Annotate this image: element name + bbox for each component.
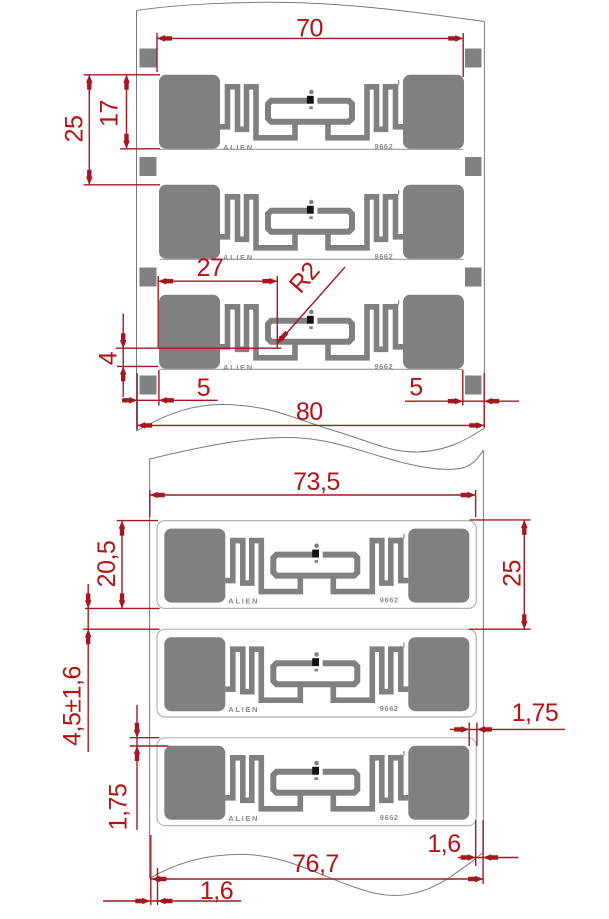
svg-text:76,7: 76,7 xyxy=(292,850,339,878)
svg-text:5: 5 xyxy=(197,374,210,402)
svg-text:80: 80 xyxy=(296,398,323,426)
svg-text:25: 25 xyxy=(499,560,527,587)
svg-text:5: 5 xyxy=(409,374,422,402)
svg-text:70: 70 xyxy=(296,15,323,43)
svg-text:1,75: 1,75 xyxy=(512,699,559,727)
svg-text:1,6: 1,6 xyxy=(427,830,460,858)
svg-text:17: 17 xyxy=(96,100,124,127)
svg-text:20,5: 20,5 xyxy=(93,541,121,588)
svg-text:4: 4 xyxy=(95,351,123,365)
svg-text:1,75: 1,75 xyxy=(105,784,133,831)
svg-text:73,5: 73,5 xyxy=(293,468,340,496)
svg-text:25: 25 xyxy=(61,116,89,143)
svg-text:1,6: 1,6 xyxy=(200,877,233,905)
svg-text:4,5±1,6: 4,5±1,6 xyxy=(59,666,87,746)
svg-text:27: 27 xyxy=(197,254,224,282)
